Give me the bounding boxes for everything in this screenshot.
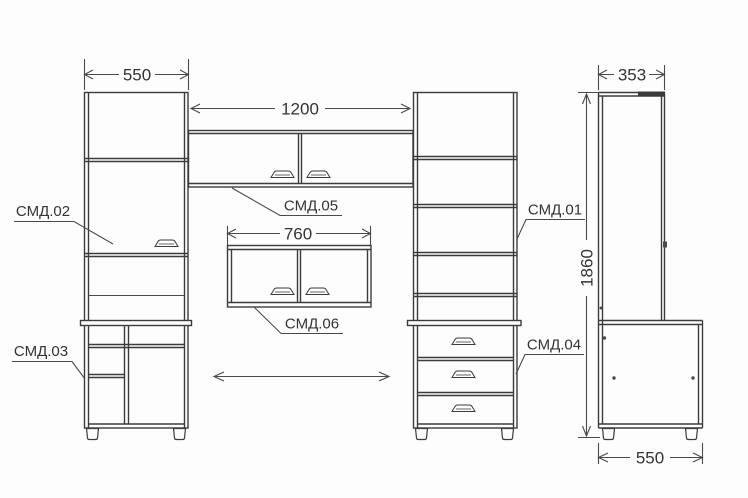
label-smd05: СМД.05 — [232, 188, 342, 216]
fitting-dot — [603, 336, 606, 339]
cabinet-foot — [502, 429, 514, 440]
cabinet-foot — [686, 429, 698, 440]
leader-line — [517, 220, 585, 240]
left-cabinet-worktop — [81, 321, 192, 326]
drawer-handle-icon — [452, 338, 475, 345]
door-handle-icon — [155, 240, 178, 247]
side-view — [599, 92, 703, 440]
desk-cabinet — [228, 246, 372, 308]
dimension-side-top-depth: 353 — [599, 65, 665, 90]
cabinet-foot — [87, 429, 99, 440]
part-label: СМД.04 — [527, 337, 581, 354]
dimension-side-bottom-depth: 550 — [599, 443, 703, 468]
label-smd04: СМД.04 — [516, 337, 584, 375]
fitting-dot — [612, 376, 615, 379]
fitting-dot — [691, 376, 694, 379]
part-label: СМД.02 — [16, 203, 70, 220]
part-label: СМД.03 — [14, 343, 68, 360]
desk-cabinet-outline — [228, 246, 372, 308]
left-tall-cabinet — [81, 93, 192, 440]
leader-line — [516, 355, 584, 375]
side-panel-top-edge-band — [638, 92, 665, 97]
label-smd06: СМД.06 — [254, 307, 343, 334]
label-smd02: СМД.02 — [14, 203, 113, 244]
leader-line — [14, 222, 113, 245]
right-tall-cabinet — [408, 93, 522, 440]
dimension-value: 550 — [123, 66, 151, 85]
wall-cabinet-outline — [189, 131, 414, 188]
cabinet-foot — [416, 429, 428, 440]
side-hinge-mark — [663, 242, 667, 248]
drawer-handle-icon — [452, 371, 475, 378]
cabinet-foot — [174, 429, 186, 440]
part-label: СМД.05 — [284, 198, 338, 215]
leader-line — [12, 362, 85, 380]
label-smd03: СМД.03 — [12, 343, 85, 379]
door-handle-icon — [271, 171, 294, 178]
drawing-svg: 550 1200 760 353 1860 — [0, 0, 748, 498]
dimension-total-height: 1860 — [578, 93, 601, 438]
dimension-value: 1860 — [578, 249, 597, 287]
fitting-dot — [600, 307, 603, 310]
dimension-desk-shelf-width: 760 — [228, 224, 371, 245]
desk-span-arrow — [214, 372, 389, 381]
dimension-value: 1200 — [281, 100, 319, 119]
label-smd01: СМД.01 — [517, 202, 585, 240]
dimension-value: 550 — [636, 449, 664, 468]
door-handle-icon — [306, 288, 329, 295]
part-label: СМД.01 — [528, 202, 582, 219]
part-label: СМД.06 — [285, 316, 339, 333]
right-cabinet-worktop — [408, 321, 522, 326]
dimension-value: 760 — [284, 225, 312, 244]
dimension-value: 353 — [618, 66, 646, 85]
wall-cabinet — [189, 131, 414, 188]
door-handle-icon — [271, 288, 294, 295]
dimension-wall-cabinet-width: 1200 — [191, 99, 410, 119]
drawer-handle-icon — [452, 405, 475, 412]
door-handle-icon — [307, 171, 330, 178]
furniture-technical-drawing: 550 1200 760 353 1860 — [0, 0, 748, 498]
dimension-left-cabinet-width: 550 — [85, 59, 189, 90]
cabinet-foot — [603, 429, 615, 440]
